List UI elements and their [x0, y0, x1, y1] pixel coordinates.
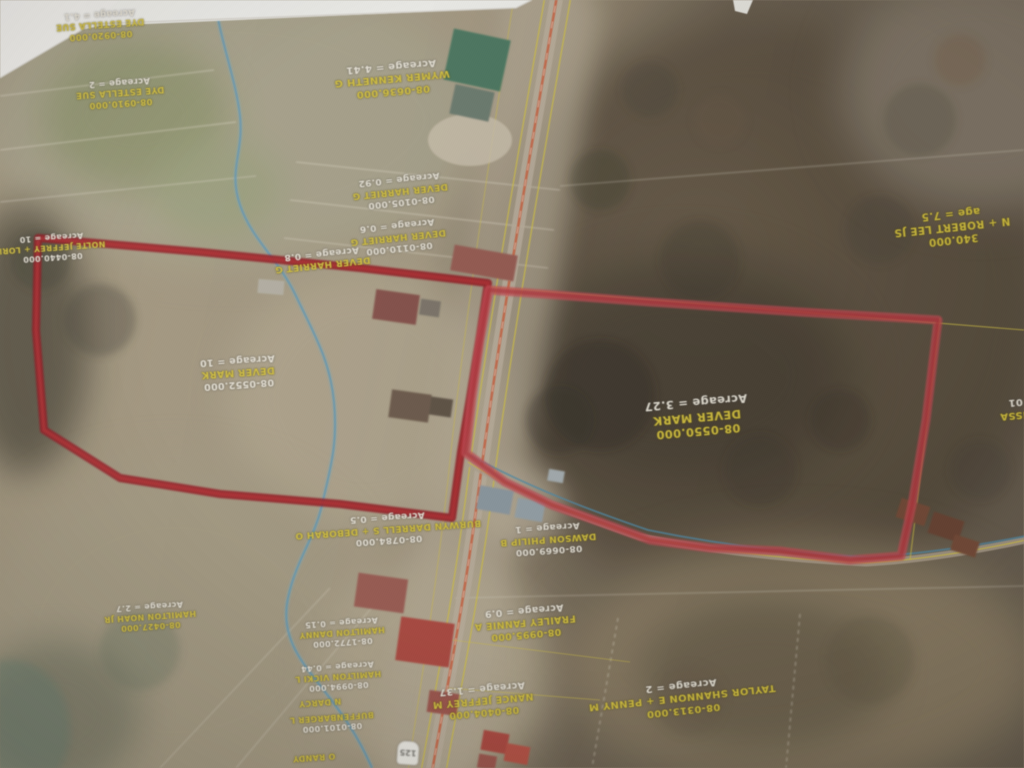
aerial-photo: 08-0920.000DYE ESTELLA SUEAcreage = 4.10… — [0, 0, 1024, 768]
parcel-label-line: FRAILEY FANNIE A — [474, 612, 576, 633]
parcel-label-line: LISSA — [999, 407, 1024, 422]
parcel-label-line: N DARCY — [299, 696, 342, 709]
parcel-label-line: DEVER MARK — [645, 405, 749, 428]
parcel-label-line: 08-0404.000 — [433, 702, 535, 723]
parcel-label-dever-mark-left: 08-0552.000DEVER MARKAcreage = 10 — [199, 352, 276, 393]
parcel-label-line: Acreage = 0.9 — [473, 600, 575, 621]
parcel-label-line: 01 — [998, 394, 1024, 409]
parcel-label-line: Acreage = 2 — [75, 73, 164, 90]
parcel-label-frailey-fannie: 08-0995.000FRAILEY FANNIE AAcreage = 0.9 — [473, 600, 577, 644]
parcel-label-nolte-jeffrey: 08-0440.000NOLTE JEFFREY + LORIAcreage =… — [0, 228, 106, 265]
map-photo: 08-0920.000DYE ESTELLA SUEAcreage = 4.10… — [0, 0, 1024, 768]
parcel-label-line: HAMILTON DANNY — [299, 624, 385, 640]
parcel-label-dye-lower: 08-0910.000DYE ESTELLA SUEAcreage = 2 — [75, 73, 166, 111]
parcel-label-wymer-kenneth: 08-0636.000WYMER KENNETH GAcreage = 4.41 — [333, 54, 452, 101]
parcel-label-line: HAMILTON NOAH JR — [104, 608, 197, 624]
parcel-label-line: Acreage = 2.7 — [103, 598, 196, 614]
parcel-label-line: Acreage = 0.5 — [294, 505, 481, 529]
parcel-label-line: Acreage = 0.8 — [273, 242, 369, 263]
parcel-label-line: NOLTE JEFFREY + LORI — [0, 238, 106, 255]
parcel-label-buffenbarger: 08-0101.000BUFFENBARGER L — [289, 709, 375, 735]
parcel-label-melissa-partial: LISSA01 — [998, 394, 1024, 422]
parcel-label-darcy-partial: N DARCY — [299, 696, 342, 709]
parcel-label-hamilton-noah: 08-0427.000HAMILTON NOAH JRAcreage = 2.7 — [103, 598, 197, 634]
parcel-label-taylor-shannon: 08-0313.000TAYLOR SHANNON E + PENNY MAcr… — [587, 669, 778, 726]
parcel-label-line: BURWYN DARRELL S + DEBORAH O — [295, 516, 482, 540]
parcel-label-line: 08-1772.000 — [300, 634, 386, 650]
parcel-label-line: Acreage = 0.44 — [294, 658, 381, 674]
parcel-label-line: Acreage = 2 — [587, 669, 775, 701]
parcel-label-line: age = 7.5 — [892, 200, 1010, 225]
parcel-label-line: BUFFENBARGER L — [289, 709, 374, 725]
parcel-label-dever-mark-right: 08-0550.000DEVER MARKAcreage = 3.27 — [644, 391, 751, 443]
parcel-label-line: 08-0427.000 — [104, 618, 197, 634]
parcel-label-line: DEVER MARK — [200, 363, 276, 380]
parcel-label-line: 08-0105.000 — [353, 191, 449, 212]
parcel-label-line: O RANDY — [292, 751, 335, 764]
parcel-label-line: DYE ESTELLA SUE — [75, 84, 164, 101]
parcel-label-line: 08-0784.000 — [295, 527, 482, 551]
parcel-label-line: 08-0995.000 — [475, 623, 577, 644]
parcel-label-line: 08-0994.000 — [295, 678, 382, 694]
parcel-label-line: TAYLOR SHANNON E + PENNY M — [588, 681, 776, 713]
route-number: 125 — [399, 748, 416, 758]
parcel-label-line: 08-0669.000 — [500, 540, 597, 558]
parcel-label-dawson-philip: 08-0669.000DAWSON PHILIP BAcreage = 1 — [499, 518, 598, 558]
parcel-label-dever-harriet-1: 08-0105.000DEVER HARRIET GAcreage = 0.92 — [351, 168, 450, 212]
parcel-label-dever-harriet-3: DEVER HARRIET GAcreage = 0.8 — [273, 242, 371, 274]
parcel-label-line: WYMER KENNETH G — [334, 67, 450, 90]
parcel-label-line: DEVER HARRIET G — [274, 253, 370, 274]
parcel-label-line: 340.000 — [895, 226, 1013, 251]
parcel-label-line: 08-0920.000 — [56, 26, 145, 43]
parcel-label-line: Acreage = 0.15 — [298, 614, 384, 630]
parcel-label-line: 08-0550.000 — [646, 420, 750, 443]
parcel-label-line: DAWSON PHILIP B — [500, 529, 597, 547]
parcel-label-line: 08-0910.000 — [76, 94, 165, 111]
parcel-label-hamilton-vicki: 08-0994.000HAMILTON VICKI LAcreage = 0.4… — [294, 658, 382, 694]
parcel-label-line: Acreage = 4.1 — [55, 5, 144, 22]
parcel-label-line: NANCE JEFFREY M — [432, 690, 534, 711]
parcel-label-line: 08-0552.000 — [201, 375, 277, 392]
parcel-label-line: DYE ESTELLA SUE — [55, 16, 144, 33]
parcel-label-line: Acreage = 1.37 — [431, 678, 533, 699]
parcel-label-line: 08-0101.000 — [290, 719, 375, 735]
parcel-label-dye-upper: 08-0920.000DYE ESTELLA SUEAcreage = 4.1 — [55, 5, 146, 43]
route-shield-icon: 125 — [396, 740, 420, 765]
parcel-label-line: Acreage = 4.41 — [333, 54, 449, 77]
parcel-label-line: Acreage = 10 — [199, 352, 275, 369]
parcel-label-line: 08-0313.000 — [589, 693, 777, 725]
parcel-label-randy-partial: O RANDY — [292, 751, 335, 764]
parcel-label-line: Acreage = 0.92 — [351, 168, 447, 189]
parcel-label-line: Acreage = 1 — [499, 518, 596, 536]
parcel-label-line: Acreage = 10 — [0, 228, 105, 245]
parcel-label-nance-jeffrey: 08-0404.000NANCE JEFFREY MAcreage = 1.37 — [431, 678, 535, 722]
parcel-label-line: DEVER HARRIET G — [352, 179, 448, 200]
parcel-label-line: 08-0636.000 — [335, 79, 451, 102]
parcel-label-line: N + ROBERT LEE JS — [893, 213, 1011, 238]
parcel-label-hamilton-a: 08-1772.000HAMILTON DANNYAcreage = 0.15 — [298, 614, 385, 650]
parcel-label-burwyn-darrell: 08-0784.000BURWYN DARRELL S + DEBORAH OA… — [294, 505, 482, 552]
parcel-label-line: Acreage = 0.6 — [349, 214, 445, 235]
parcel-label-line: Acreage = 3.27 — [644, 391, 748, 414]
parcel-label-line: HAMILTON VICKI L — [295, 668, 382, 684]
parcel-labels: 08-0920.000DYE ESTELLA SUEAcreage = 4.10… — [0, 0, 1024, 768]
parcel-label-line: 08-0440.000 — [0, 248, 106, 265]
parcel-label-robert-lee: 340.000N + ROBERT LEE JSage = 7.5 — [892, 200, 1012, 251]
